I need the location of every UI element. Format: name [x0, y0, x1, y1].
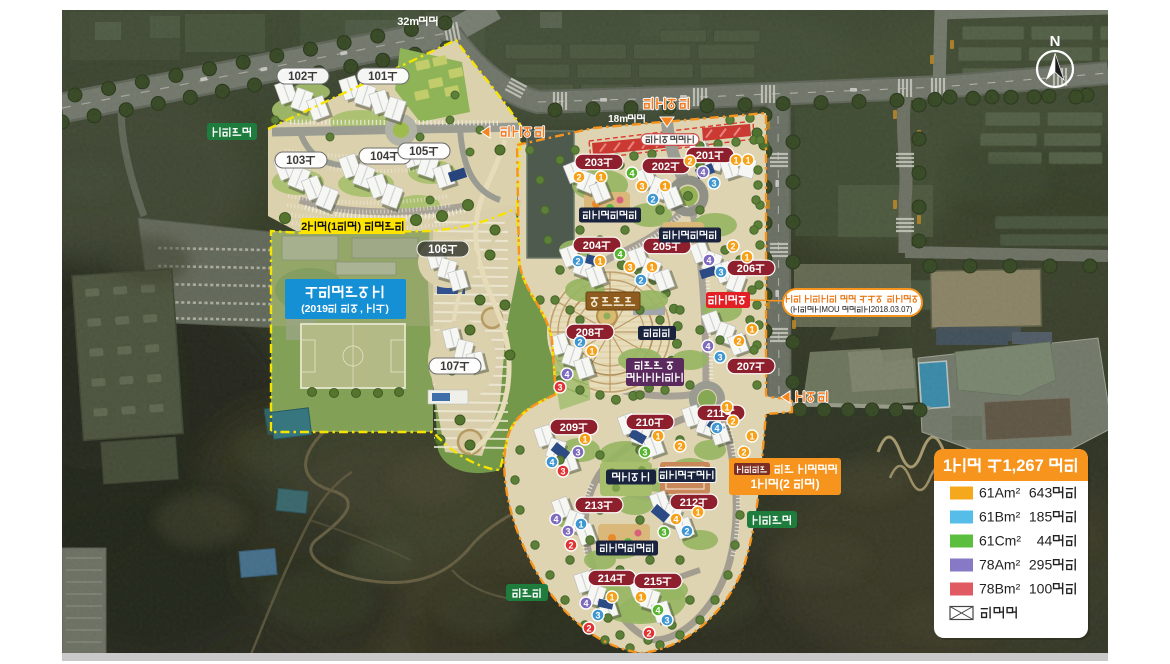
svg-text:2: 2	[586, 623, 591, 633]
svg-text:1: 1	[733, 155, 738, 165]
svg-text:1: 1	[695, 507, 700, 517]
svg-text:209: 209	[560, 422, 578, 434]
svg-text:,: ,	[360, 303, 363, 315]
svg-text:3: 3	[639, 181, 644, 191]
svg-text:4: 4	[553, 514, 558, 524]
svg-text:210: 210	[636, 417, 654, 429]
svg-text:3: 3	[627, 262, 632, 272]
svg-text:4: 4	[700, 167, 705, 177]
svg-text:1: 1	[649, 262, 654, 272]
svg-text:3: 3	[595, 610, 600, 620]
svg-text:): )	[358, 221, 362, 233]
svg-text:2: 2	[684, 526, 689, 536]
svg-text:4: 4	[617, 249, 622, 259]
svg-text:213: 213	[585, 500, 603, 512]
svg-text:3: 3	[557, 382, 562, 392]
svg-text:44: 44	[1037, 533, 1053, 549]
svg-text:4: 4	[714, 423, 719, 433]
svg-text:): )	[385, 303, 389, 315]
svg-text:2: 2	[576, 172, 581, 182]
svg-text:3: 3	[661, 527, 666, 537]
svg-text:2: 2	[577, 337, 582, 347]
svg-text:78Bm²: 78Bm²	[979, 581, 1021, 597]
svg-text:2: 2	[638, 275, 643, 285]
svg-text:1: 1	[609, 592, 614, 602]
svg-text:103: 103	[286, 155, 305, 167]
svg-text:1: 1	[744, 252, 749, 262]
svg-text:61Bm²: 61Bm²	[979, 509, 1021, 525]
svg-text:(: (	[790, 305, 793, 314]
svg-text:78Am²: 78Am²	[979, 557, 1021, 573]
svg-text:102: 102	[288, 71, 307, 83]
svg-text:295: 295	[1029, 557, 1053, 573]
svg-text:18m: 18m	[608, 114, 628, 125]
svg-text:1: 1	[655, 431, 660, 441]
svg-text:204: 204	[583, 240, 602, 252]
svg-text:2: 2	[301, 221, 307, 233]
svg-text:(2: (2	[779, 477, 790, 491]
svg-text:2: 2	[568, 540, 573, 550]
svg-text:201: 201	[696, 150, 714, 162]
svg-text:3: 3	[575, 447, 580, 457]
svg-text:1: 1	[662, 181, 667, 191]
svg-text:61Cm²: 61Cm²	[979, 533, 1021, 549]
svg-text:3: 3	[718, 267, 723, 277]
svg-text:104: 104	[370, 151, 390, 163]
svg-text:2018.03.07): 2018.03.07)	[871, 305, 913, 314]
svg-text:107: 107	[440, 361, 459, 373]
svg-text:2: 2	[575, 256, 580, 266]
svg-text:215: 215	[644, 576, 662, 588]
svg-text:3: 3	[642, 447, 647, 457]
svg-text:100: 100	[1029, 581, 1053, 597]
svg-text:1: 1	[598, 172, 603, 182]
svg-text:101: 101	[368, 71, 388, 83]
svg-text:1: 1	[597, 256, 602, 266]
svg-text:1: 1	[745, 155, 750, 165]
svg-text:MOU: MOU	[822, 305, 841, 314]
svg-text:32m: 32m	[397, 16, 419, 28]
svg-text:106: 106	[428, 244, 447, 256]
svg-text:4: 4	[583, 598, 588, 608]
svg-text:105: 105	[409, 146, 429, 158]
svg-text:2: 2	[650, 194, 655, 204]
svg-text:2: 2	[736, 336, 741, 346]
svg-text:61Am²: 61Am²	[979, 485, 1021, 501]
svg-text:4: 4	[564, 369, 569, 379]
svg-text:2: 2	[646, 628, 651, 638]
svg-text:1: 1	[582, 434, 587, 444]
svg-text:4: 4	[706, 255, 711, 265]
svg-text:2: 2	[730, 416, 735, 426]
svg-text:(1: (1	[327, 221, 337, 233]
svg-text:207: 207	[737, 361, 755, 373]
svg-text:202: 202	[652, 161, 670, 173]
svg-text:1: 1	[749, 324, 754, 334]
svg-text:2: 2	[677, 441, 682, 451]
svg-text:1: 1	[638, 592, 643, 602]
svg-text:1: 1	[751, 477, 758, 491]
svg-text:2: 2	[730, 241, 735, 251]
svg-text:1: 1	[578, 519, 583, 529]
svg-text:643: 643	[1029, 485, 1053, 501]
svg-text:4: 4	[655, 605, 660, 615]
svg-text:1,267: 1,267	[1003, 457, 1044, 475]
svg-text:3: 3	[560, 466, 565, 476]
svg-text:203: 203	[585, 157, 603, 169]
svg-text:185: 185	[1029, 509, 1053, 525]
svg-text:1: 1	[589, 346, 594, 356]
svg-text:205: 205	[653, 241, 671, 253]
svg-text:3: 3	[664, 615, 669, 625]
svg-text:206: 206	[737, 263, 755, 275]
svg-text:1: 1	[943, 457, 952, 475]
svg-text:1: 1	[749, 431, 754, 441]
svg-text:N: N	[1050, 33, 1061, 50]
svg-text:1: 1	[724, 402, 729, 412]
svg-text:3: 3	[565, 526, 570, 536]
svg-text:4: 4	[673, 514, 678, 524]
svg-text:4: 4	[705, 341, 710, 351]
svg-text:214: 214	[598, 573, 617, 585]
svg-text:): )	[816, 477, 820, 491]
svg-text:4: 4	[629, 168, 634, 178]
svg-text:3: 3	[711, 178, 716, 188]
svg-text:3: 3	[717, 352, 722, 362]
svg-text:(2019: (2019	[301, 303, 328, 315]
svg-text:4: 4	[549, 457, 554, 467]
svg-text:2: 2	[687, 156, 692, 166]
svg-text:2: 2	[741, 447, 746, 457]
